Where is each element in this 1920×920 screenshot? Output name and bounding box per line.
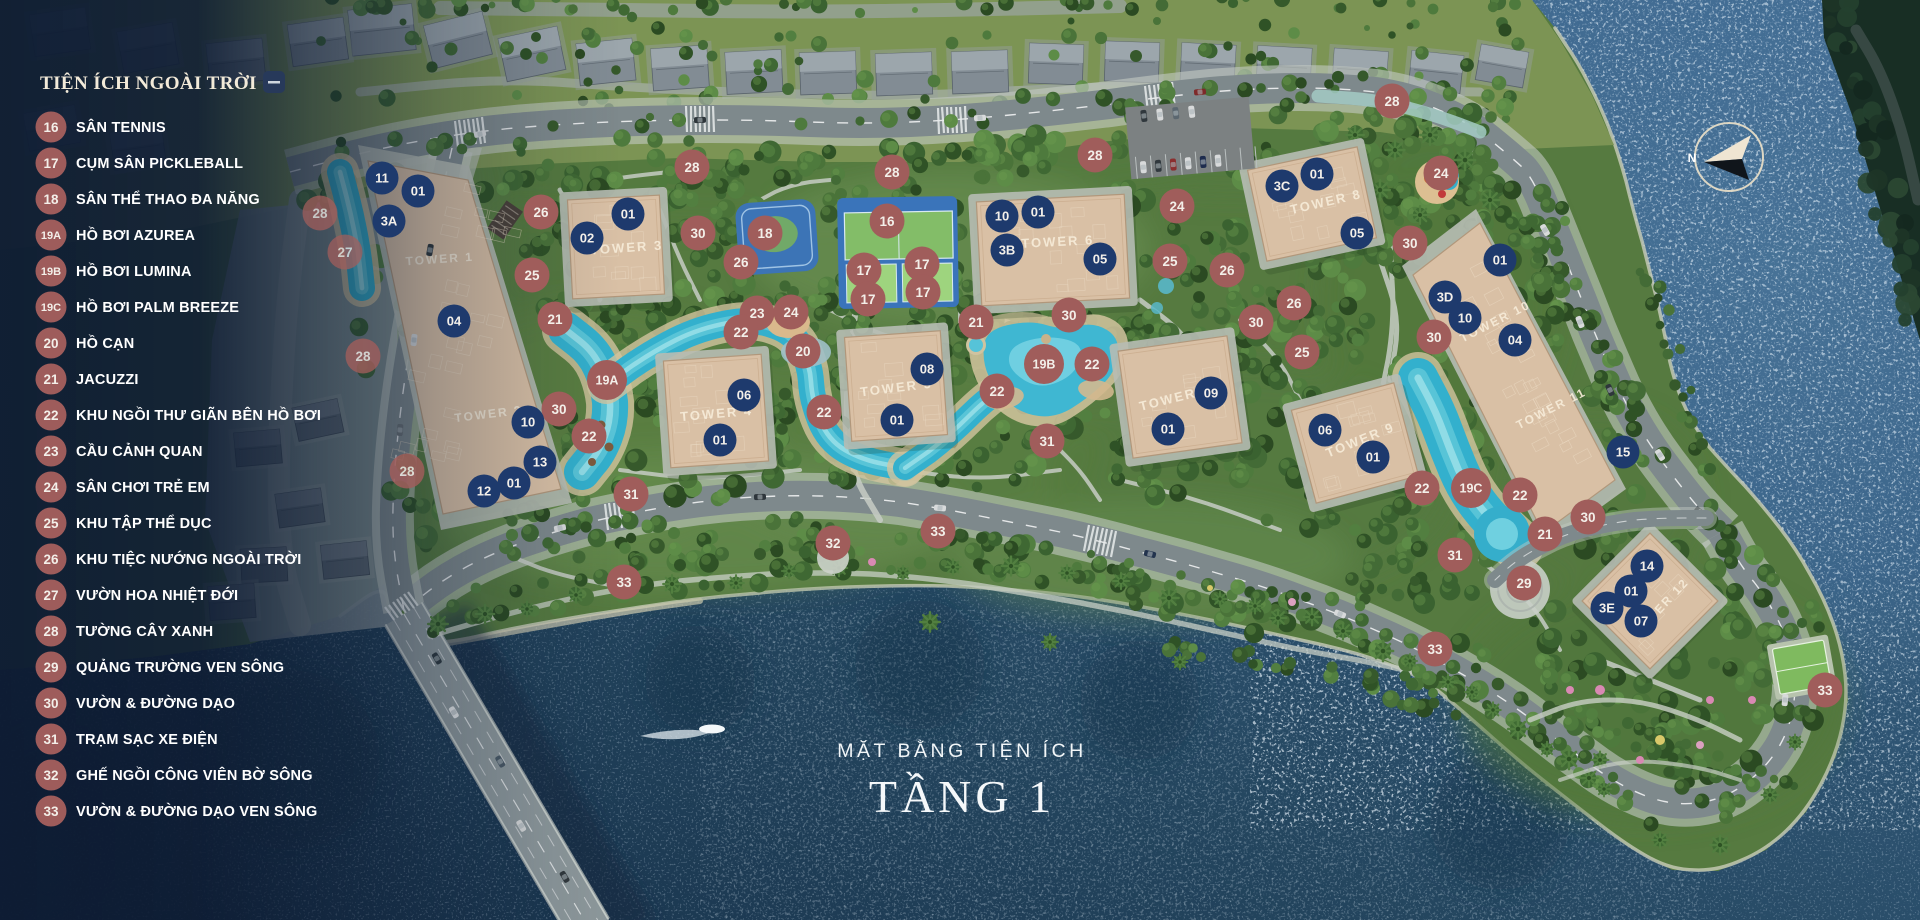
svg-text:01: 01 — [713, 433, 727, 448]
svg-text:18: 18 — [43, 192, 59, 207]
svg-text:GHẾ NGỒI CÔNG VIÊN BỜ SÔNG: GHẾ NGỒI CÔNG VIÊN BỜ SÔNG — [76, 766, 313, 784]
svg-text:16: 16 — [879, 214, 895, 229]
svg-text:26: 26 — [1286, 296, 1302, 311]
svg-text:06: 06 — [737, 388, 751, 403]
svg-text:07: 07 — [1634, 614, 1648, 629]
svg-text:31: 31 — [1039, 434, 1055, 449]
svg-text:31: 31 — [43, 732, 59, 747]
svg-text:33: 33 — [43, 804, 59, 819]
svg-text:30: 30 — [1426, 330, 1441, 345]
svg-text:14: 14 — [1640, 559, 1655, 574]
svg-text:VƯỜN & ĐƯỜNG DẠO VEN SÔNG: VƯỜN & ĐƯỜNG DẠO VEN SÔNG — [76, 802, 318, 820]
svg-text:28: 28 — [355, 349, 371, 364]
svg-text:HỒ BƠI AZUREA: HỒ BƠI AZUREA — [76, 226, 195, 244]
svg-text:05: 05 — [1350, 226, 1364, 241]
svg-text:06: 06 — [1318, 423, 1332, 438]
svg-text:21: 21 — [43, 372, 59, 387]
svg-text:22: 22 — [733, 325, 748, 340]
svg-text:28: 28 — [312, 206, 328, 221]
svg-text:30: 30 — [551, 402, 566, 417]
svg-text:SÂN CHƠI TRẺ EM: SÂN CHƠI TRẺ EM — [76, 478, 210, 496]
svg-text:30: 30 — [1061, 308, 1076, 323]
svg-text:33: 33 — [616, 575, 632, 590]
svg-text:10: 10 — [521, 415, 535, 430]
svg-text:23: 23 — [43, 444, 59, 459]
svg-text:22: 22 — [1512, 488, 1527, 503]
svg-text:VƯỜN HOA NHIỆT ĐỚI: VƯỜN HOA NHIỆT ĐỚI — [76, 586, 238, 604]
svg-text:21: 21 — [968, 315, 984, 330]
svg-text:19A: 19A — [41, 230, 61, 242]
svg-text:30: 30 — [1402, 236, 1417, 251]
svg-text:25: 25 — [1294, 345, 1310, 360]
svg-text:22: 22 — [1414, 481, 1429, 496]
svg-text:17: 17 — [915, 285, 930, 300]
svg-text:22: 22 — [43, 408, 58, 423]
svg-text:19B: 19B — [41, 266, 61, 278]
svg-text:30: 30 — [1248, 315, 1263, 330]
svg-text:JACUZZI: JACUZZI — [76, 372, 139, 388]
svg-text:33: 33 — [930, 524, 946, 539]
svg-text:26: 26 — [1219, 263, 1235, 278]
svg-text:CỤM SÂN PICKLEBALL: CỤM SÂN PICKLEBALL — [76, 154, 243, 172]
svg-text:22: 22 — [1084, 357, 1099, 372]
svg-text:KHU NGỒI THƯ GIÃN BÊN HỒ BƠI: KHU NGỒI THƯ GIÃN BÊN HỒ BƠI — [76, 406, 321, 424]
svg-text:MẶT BẰNG TIỆN ÍCH: MẶT BẰNG TIỆN ÍCH — [837, 738, 1086, 762]
svg-text:16: 16 — [43, 120, 59, 135]
svg-text:22: 22 — [581, 429, 596, 444]
svg-text:CẦU CẢNH QUAN: CẦU CẢNH QUAN — [76, 443, 203, 460]
svg-text:26: 26 — [733, 255, 749, 270]
svg-text:01: 01 — [1310, 167, 1324, 182]
svg-text:KHU TẬP THỂ DỤC: KHU TẬP THỂ DỤC — [76, 514, 212, 532]
svg-text:33: 33 — [1427, 642, 1443, 657]
svg-text:09: 09 — [1204, 386, 1218, 401]
svg-text:01: 01 — [1624, 584, 1638, 599]
svg-text:24: 24 — [43, 480, 59, 495]
svg-text:17: 17 — [914, 257, 929, 272]
svg-text:04: 04 — [447, 314, 462, 329]
svg-text:24: 24 — [1169, 199, 1185, 214]
svg-text:30: 30 — [43, 696, 58, 711]
svg-text:15: 15 — [1616, 445, 1630, 460]
svg-text:01: 01 — [890, 413, 904, 428]
svg-text:01: 01 — [1366, 450, 1380, 465]
svg-text:SÂN THỂ THAO ĐA NĂNG: SÂN THỂ THAO ĐA NĂNG — [76, 190, 260, 208]
svg-text:3E: 3E — [1599, 601, 1615, 616]
svg-text:31: 31 — [623, 487, 639, 502]
svg-text:30: 30 — [690, 226, 705, 241]
svg-text:10: 10 — [995, 209, 1009, 224]
svg-text:27: 27 — [337, 245, 352, 260]
svg-text:33: 33 — [1817, 683, 1833, 698]
svg-text:26: 26 — [43, 552, 59, 567]
svg-text:08: 08 — [920, 362, 934, 377]
svg-text:27: 27 — [43, 588, 58, 603]
svg-text:02: 02 — [580, 231, 594, 246]
svg-text:05: 05 — [1093, 252, 1107, 267]
svg-text:3B: 3B — [999, 243, 1016, 258]
svg-text:21: 21 — [547, 312, 563, 327]
svg-text:19B: 19B — [1033, 358, 1056, 372]
svg-text:28: 28 — [1087, 148, 1103, 163]
svg-text:29: 29 — [1516, 576, 1531, 591]
svg-text:VƯỜN & ĐƯỜNG DẠO: VƯỜN & ĐƯỜNG DẠO — [76, 694, 235, 712]
svg-text:3D: 3D — [1437, 290, 1454, 305]
svg-text:01: 01 — [1031, 205, 1045, 220]
svg-text:01: 01 — [1493, 253, 1507, 268]
svg-text:29: 29 — [43, 660, 58, 675]
svg-text:04: 04 — [1508, 333, 1523, 348]
svg-text:HỒ CẠN: HỒ CẠN — [76, 334, 134, 352]
svg-text:28: 28 — [1384, 94, 1400, 109]
svg-text:01: 01 — [1161, 422, 1175, 437]
svg-text:17: 17 — [43, 156, 58, 171]
svg-text:30: 30 — [1580, 510, 1595, 525]
svg-text:25: 25 — [43, 516, 59, 531]
svg-text:12: 12 — [477, 484, 491, 499]
svg-text:20: 20 — [795, 344, 810, 359]
svg-text:N: N — [1688, 151, 1697, 165]
svg-text:25: 25 — [1162, 254, 1178, 269]
svg-text:31: 31 — [1447, 548, 1463, 563]
svg-text:01: 01 — [411, 184, 425, 199]
svg-text:13: 13 — [533, 455, 547, 470]
svg-text:25: 25 — [524, 268, 540, 283]
svg-text:TƯỜNG CÂY XANH: TƯỜNG CÂY XANH — [76, 622, 213, 640]
svg-text:22: 22 — [816, 405, 831, 420]
svg-text:28: 28 — [684, 160, 700, 175]
svg-text:28: 28 — [884, 165, 900, 180]
svg-text:28: 28 — [399, 464, 415, 479]
svg-text:32: 32 — [825, 536, 840, 551]
svg-text:KHU TIỆC NƯỚNG NGOÀI TRỜI: KHU TIỆC NƯỚNG NGOÀI TRỜI — [76, 550, 301, 568]
svg-text:32: 32 — [43, 768, 58, 783]
svg-text:17: 17 — [856, 263, 871, 278]
svg-text:SÂN TENNIS: SÂN TENNIS — [76, 118, 166, 136]
svg-text:11: 11 — [375, 171, 389, 186]
svg-text:24: 24 — [783, 305, 799, 320]
svg-text:18: 18 — [757, 226, 773, 241]
svg-text:01: 01 — [621, 207, 635, 222]
svg-text:26: 26 — [533, 205, 549, 220]
svg-text:24: 24 — [1433, 166, 1449, 181]
svg-text:TIỆN ÍCH NGOÀI TRỜI: TIỆN ÍCH NGOÀI TRỜI — [40, 72, 257, 94]
svg-text:TẦNG 1: TẦNG 1 — [869, 770, 1055, 822]
svg-text:17: 17 — [860, 292, 875, 307]
svg-text:3A: 3A — [381, 214, 398, 229]
svg-text:19C: 19C — [1460, 482, 1483, 496]
svg-text:01: 01 — [507, 476, 521, 491]
svg-text:QUẢNG TRƯỜNG VEN SÔNG: QUẢNG TRƯỜNG VEN SÔNG — [76, 658, 284, 676]
svg-text:TRẠM SẠC XE ĐIỆN: TRẠM SẠC XE ĐIỆN — [76, 730, 218, 748]
svg-text:19A: 19A — [596, 374, 619, 388]
svg-text:21: 21 — [1537, 527, 1553, 542]
svg-text:10: 10 — [1458, 311, 1472, 326]
svg-text:HỒ BƠI PALM BREEZE: HỒ BƠI PALM BREEZE — [76, 298, 239, 316]
svg-text:3C: 3C — [1274, 179, 1291, 194]
svg-text:HỒ BƠI LUMINA: HỒ BƠI LUMINA — [76, 262, 192, 280]
svg-text:19C: 19C — [41, 302, 61, 314]
svg-text:22: 22 — [989, 384, 1004, 399]
svg-text:20: 20 — [43, 336, 58, 351]
svg-text:28: 28 — [43, 624, 59, 639]
